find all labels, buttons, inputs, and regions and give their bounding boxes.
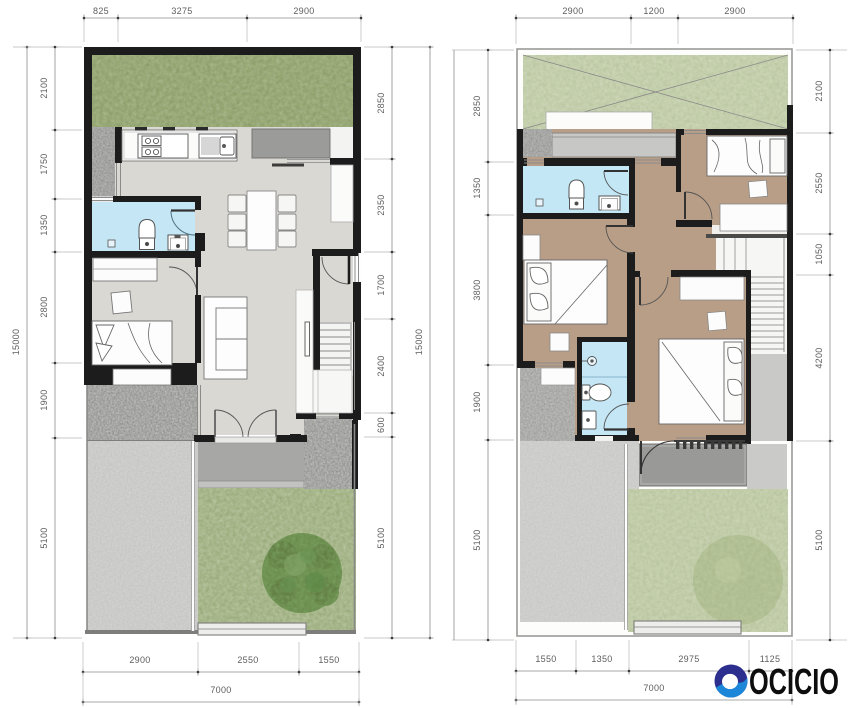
svg-text:7000: 7000	[643, 683, 664, 693]
svg-text:4200: 4200	[814, 347, 824, 368]
svg-text:1550: 1550	[318, 655, 339, 665]
svg-text:2975: 2975	[678, 654, 699, 664]
svg-text:3800: 3800	[472, 279, 482, 300]
svg-text:2100: 2100	[814, 80, 824, 101]
svg-text:1050: 1050	[814, 243, 824, 264]
svg-text:1900: 1900	[39, 389, 49, 410]
svg-text:2900: 2900	[724, 6, 745, 16]
svg-text:2850: 2850	[472, 95, 482, 116]
svg-text:2900: 2900	[562, 6, 583, 16]
svg-text:5100: 5100	[472, 529, 482, 550]
svg-text:1200: 1200	[643, 6, 664, 16]
svg-text:825: 825	[93, 6, 109, 16]
svg-text:1350: 1350	[39, 214, 49, 235]
svg-text:3275: 3275	[171, 6, 192, 16]
svg-text:5100: 5100	[39, 527, 49, 548]
svg-text:2800: 2800	[39, 296, 49, 317]
svg-text:5100: 5100	[814, 529, 824, 550]
svg-text:2350: 2350	[376, 194, 386, 215]
svg-text:2400: 2400	[376, 355, 386, 376]
svg-text:7000: 7000	[210, 685, 231, 695]
svg-text:1700: 1700	[376, 274, 386, 295]
svg-text:2100: 2100	[39, 77, 49, 98]
svg-text:2900: 2900	[129, 655, 150, 665]
svg-text:1550: 1550	[535, 654, 556, 664]
svg-text:2850: 2850	[376, 92, 386, 113]
svg-text:2900: 2900	[293, 6, 314, 16]
svg-text:1750: 1750	[39, 153, 49, 174]
svg-text:2550: 2550	[814, 172, 824, 193]
svg-text:15000: 15000	[11, 329, 21, 356]
svg-text:1350: 1350	[472, 177, 482, 198]
svg-text:2550: 2550	[237, 655, 258, 665]
svg-text:OCICIO: OCICIO	[749, 661, 839, 702]
svg-text:15000: 15000	[414, 329, 424, 356]
svg-text:600: 600	[376, 417, 386, 433]
svg-text:5100: 5100	[376, 527, 386, 548]
svg-text:1350: 1350	[591, 654, 612, 664]
svg-text:1900: 1900	[472, 391, 482, 412]
